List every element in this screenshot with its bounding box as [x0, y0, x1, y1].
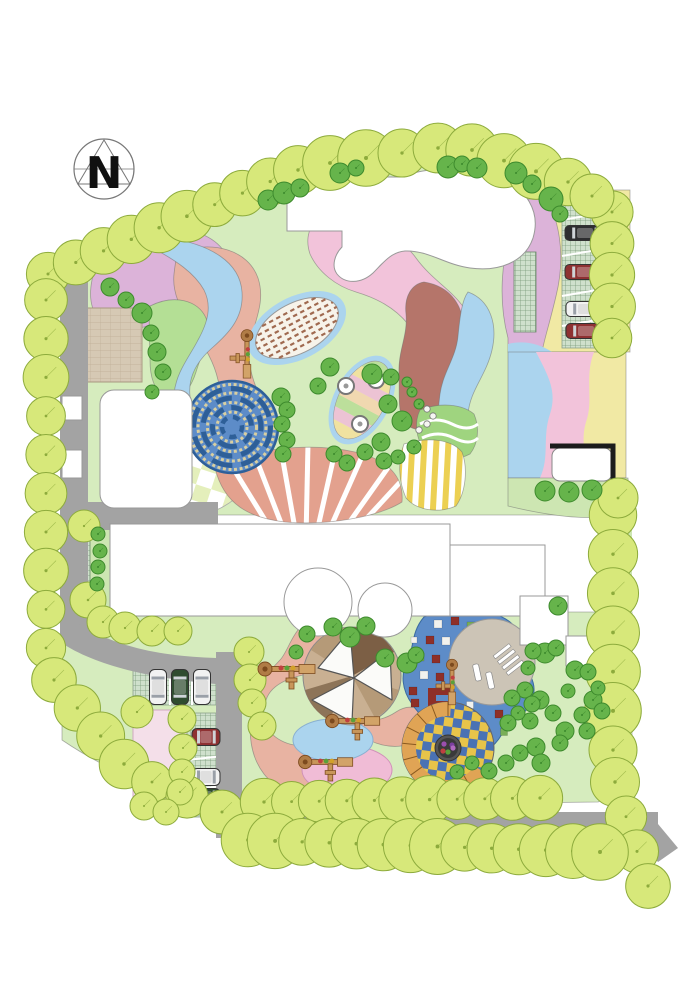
mosaic-tile	[451, 617, 459, 625]
tree-canopy	[626, 864, 671, 909]
shrub-tree	[579, 723, 595, 739]
shrub-tree	[383, 369, 399, 385]
shrub-tree	[274, 416, 290, 432]
shelter	[552, 448, 612, 481]
shrub-tree	[591, 681, 605, 695]
tree-canopy	[570, 174, 614, 218]
shrub-tree	[552, 735, 568, 751]
shrub-tree	[414, 399, 424, 409]
tree-canopy	[592, 318, 632, 358]
shrub-tree	[391, 450, 405, 464]
car	[172, 670, 189, 705]
shrub-tree	[155, 364, 171, 380]
shrub-tree	[580, 664, 596, 680]
shrub-tree	[91, 527, 105, 541]
shrub-tree	[376, 649, 394, 667]
shrub-tree	[525, 643, 541, 659]
maze	[186, 381, 278, 473]
shrub-tree	[132, 303, 152, 323]
north-arrow: N	[74, 139, 134, 199]
stepping-stone	[416, 427, 422, 433]
shrub-tree	[574, 707, 590, 723]
mosaic-tile	[411, 699, 419, 707]
tree-canopy	[25, 472, 67, 514]
shrub-tree	[310, 378, 326, 394]
tree-canopy	[169, 734, 197, 762]
shrub-tree	[500, 715, 516, 731]
tree-canopy	[168, 705, 196, 733]
stepping-stone	[424, 421, 430, 427]
west-wing	[100, 390, 192, 508]
shrub-tree	[450, 765, 464, 779]
shrub-tree	[145, 385, 159, 399]
shrub-tree	[275, 446, 291, 462]
tree-canopy	[109, 612, 141, 644]
shrub-tree	[324, 618, 342, 636]
mosaic-tile	[411, 637, 417, 643]
mosaic-tile	[442, 637, 450, 645]
mosaic-tile	[426, 636, 434, 644]
tree-canopy	[164, 617, 192, 645]
shrub-tree	[594, 703, 610, 719]
shrub-tree	[408, 647, 424, 663]
mosaic-tile	[434, 620, 442, 628]
tree-canopy	[572, 824, 629, 881]
shrub-tree	[549, 597, 567, 615]
shrub-tree	[291, 179, 309, 197]
shrub-tree	[535, 481, 555, 501]
shrub-tree	[91, 560, 105, 574]
shrub-tree	[559, 482, 579, 502]
tree-canopy	[517, 775, 562, 820]
shrub-tree	[512, 745, 528, 761]
tree-canopy	[248, 712, 276, 740]
shrub-tree	[379, 395, 397, 413]
shrub-tree	[143, 325, 159, 341]
shrub-tree	[523, 175, 541, 193]
shrub-tree	[101, 278, 119, 296]
shrub-tree	[532, 754, 550, 772]
shrub-tree	[561, 684, 575, 698]
shrub-tree	[407, 387, 417, 397]
shrub-tree	[582, 480, 602, 500]
shrub-tree	[93, 544, 107, 558]
shrub-tree	[348, 160, 364, 176]
shrub-tree	[357, 444, 373, 460]
stepping-stone	[424, 406, 430, 412]
shrub-tree	[548, 640, 564, 656]
tree-canopy	[234, 637, 264, 667]
shrub-tree	[498, 755, 514, 771]
shrub-tree	[372, 433, 390, 451]
shrub-tree	[504, 690, 520, 706]
tree-canopy	[27, 590, 65, 628]
shrub-tree	[402, 377, 412, 387]
shrub-tree	[289, 645, 303, 659]
shrub-tree	[340, 627, 360, 647]
pergola-grid	[514, 252, 536, 332]
shrub-tree	[392, 411, 412, 431]
shrub-tree	[465, 756, 479, 770]
tree-canopy	[23, 354, 69, 400]
tree-canopy	[24, 510, 67, 553]
mosaic-tile	[409, 687, 417, 695]
tree-canopy	[153, 799, 179, 825]
shrub-tree	[321, 358, 339, 376]
shrub-tree	[527, 738, 545, 756]
tree-canopy	[25, 279, 68, 322]
mosaic-tile	[495, 710, 503, 718]
north-label: N	[86, 148, 123, 199]
car	[194, 670, 211, 705]
flower	[450, 745, 455, 750]
shrub-tree	[339, 455, 355, 471]
flower	[440, 748, 445, 753]
tree-canopy	[121, 696, 153, 728]
car	[150, 670, 167, 705]
flower	[441, 741, 446, 746]
shrub-tree	[481, 763, 497, 779]
shrub-tree	[524, 696, 540, 712]
shrub-tree	[467, 158, 487, 178]
shrub-tree	[148, 343, 166, 361]
brick-plaza	[82, 308, 142, 382]
shrub-tree	[279, 432, 295, 448]
shrub-tree	[357, 617, 375, 635]
tree-canopy	[26, 435, 66, 475]
tree-canopy	[24, 548, 69, 593]
shrub-tree	[330, 163, 350, 183]
shrub-tree	[362, 364, 382, 384]
mosaic-tile	[432, 655, 440, 663]
site-plan: N	[0, 0, 699, 989]
flower	[445, 749, 450, 754]
shrub-tree	[299, 626, 315, 642]
shrub-tree	[407, 440, 421, 454]
tree-canopy	[598, 478, 638, 518]
tree-canopy	[137, 616, 167, 646]
shrub-tree	[90, 577, 104, 591]
mosaic-tile	[420, 671, 428, 679]
shrub-tree	[545, 705, 561, 721]
shrub-tree	[376, 453, 392, 469]
shrub-tree	[521, 661, 535, 675]
mosaic-tile	[436, 673, 444, 681]
shrub-tree	[552, 206, 568, 222]
stepping-stone	[430, 413, 436, 419]
tree-canopy	[27, 397, 66, 436]
site-plan-drawing: N	[0, 0, 699, 989]
shrub-tree	[118, 292, 134, 308]
